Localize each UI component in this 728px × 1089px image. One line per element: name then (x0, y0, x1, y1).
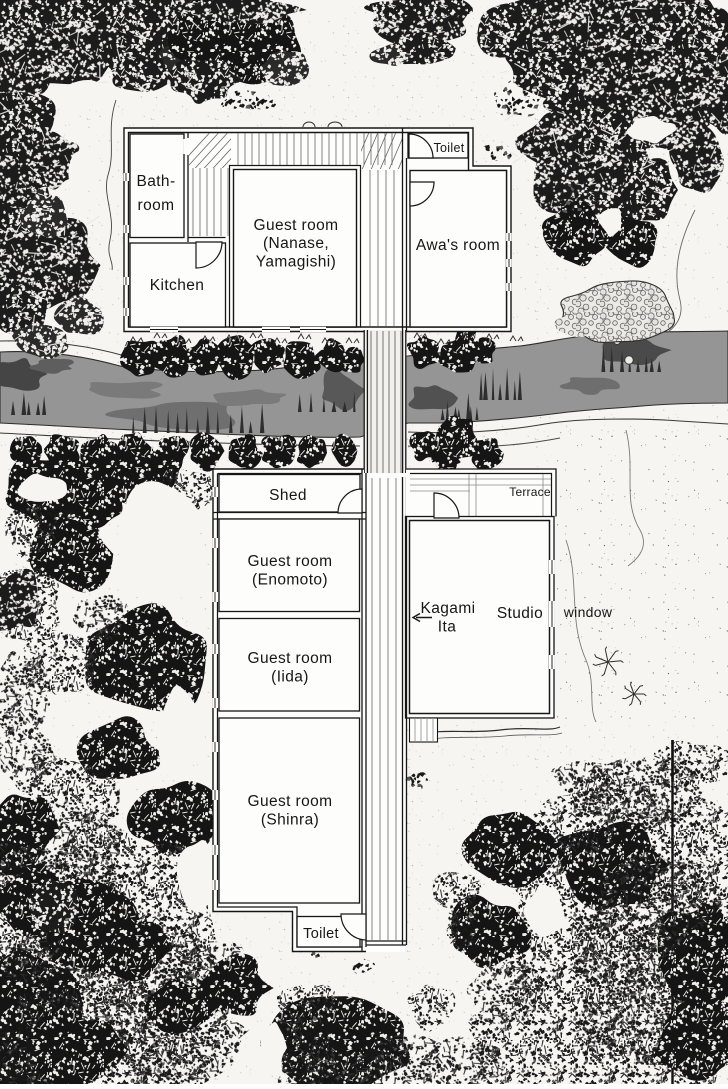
svg-text:(Iida): (Iida) (271, 669, 309, 686)
svg-text:Studio: Studio (497, 605, 543, 622)
svg-text:Shed: Shed (269, 487, 307, 504)
svg-text:Kitchen: Kitchen (150, 277, 205, 294)
svg-text:Guest room: Guest room (248, 650, 333, 667)
svg-text:Yamagishi): Yamagishi) (256, 254, 336, 271)
svg-text:room: room (138, 197, 175, 214)
svg-text:Toilet: Toilet (434, 141, 465, 155)
svg-text:Terrace: Terrace (509, 485, 551, 499)
svg-text:Bath-: Bath- (136, 173, 175, 190)
svg-text:window: window (563, 604, 613, 620)
svg-text:(Shinra): (Shinra) (261, 812, 319, 829)
svg-text:(Nanase,: (Nanase, (263, 235, 329, 252)
svg-text:(Enomoto): (Enomoto) (252, 572, 328, 589)
svg-text:Toilet: Toilet (303, 926, 339, 942)
svg-text:Kagami: Kagami (421, 600, 476, 617)
svg-text:Guest room: Guest room (254, 217, 339, 234)
svg-text:Awa's room: Awa's room (416, 237, 500, 254)
svg-text:Ita: Ita (438, 619, 456, 636)
svg-text:Guest room: Guest room (248, 553, 333, 570)
svg-text:Guest room: Guest room (248, 793, 333, 810)
